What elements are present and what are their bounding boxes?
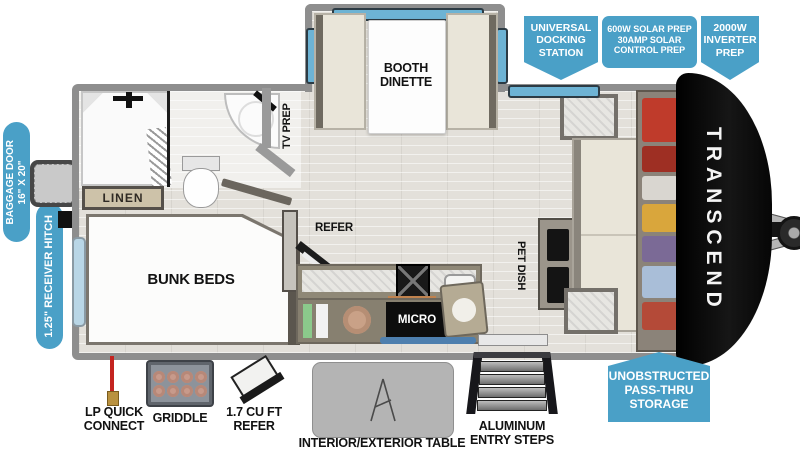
badge-line: PREP xyxy=(701,47,759,59)
baggage-door-label: BAGGAGE DOOR 16" X 20" xyxy=(5,140,29,224)
griddle-pancake xyxy=(167,385,179,397)
step-tread xyxy=(478,387,546,398)
badge-line: UNIVERSAL xyxy=(524,22,598,34)
linen-label: LINEN xyxy=(103,191,144,205)
baggage-door-panel xyxy=(34,164,74,203)
cabinet-front-top xyxy=(560,94,618,140)
linen-cabinet: LINEN xyxy=(82,186,164,210)
griddle-pancake xyxy=(181,371,193,383)
griddle-label: GRIDDLE xyxy=(142,412,218,426)
entry-door-panel xyxy=(478,334,548,346)
griddle-image xyxy=(146,360,214,407)
baggage-door-pill: BAGGAGE DOOR 16" X 20" xyxy=(3,122,30,242)
entry-steps-label: ALUMINUM ENTRY STEPS xyxy=(458,420,566,447)
badge-line: STATION xyxy=(524,47,598,59)
griddle-pancake xyxy=(195,371,207,383)
floorplan-canvas: UNIVERSAL DOCKING STATION 600W SOLAR PRE… xyxy=(0,0,800,453)
griddle-surface xyxy=(151,365,209,402)
stored-gear xyxy=(642,236,678,262)
bathroom-wall xyxy=(262,88,271,148)
stored-gear xyxy=(642,146,678,172)
stove-cooktop xyxy=(396,264,430,298)
badge-line: INVERTER xyxy=(701,34,759,46)
stored-gear xyxy=(642,176,678,200)
cabinet-white-panel xyxy=(316,304,328,338)
griddle-pancake xyxy=(181,385,193,397)
badge-line: 2000W xyxy=(701,22,759,34)
entry-steps xyxy=(468,352,556,414)
toilet-bowl xyxy=(183,168,219,208)
entry-mat xyxy=(380,337,476,344)
tv-prep-label: TV PREP xyxy=(282,98,294,154)
griddle-pancake xyxy=(195,385,207,397)
stored-table-top xyxy=(451,297,477,323)
stored-gear xyxy=(642,204,678,232)
table-label: INTERIOR/EXTERIOR TABLE xyxy=(290,437,474,451)
stored-gear xyxy=(642,98,678,142)
griddle-pancake xyxy=(167,371,179,383)
refer-label: REFER xyxy=(306,222,362,234)
badge-line: PASS-THRU xyxy=(608,383,710,397)
receiver-hitch-label: 1.25" RECEIVER HITCH xyxy=(43,215,56,338)
lp-fitting xyxy=(107,391,119,406)
pass-thru-badge: UNOBSTRUCTED PASS-THRU STORAGE xyxy=(608,352,710,422)
bench-edge xyxy=(489,15,496,128)
microwave: MICRO xyxy=(386,302,448,338)
bunk-window xyxy=(72,237,86,327)
stored-table xyxy=(439,281,488,338)
cabinet-front-bottom xyxy=(564,288,618,334)
cutting-board xyxy=(343,306,371,334)
front-cap: TRANSCEND xyxy=(676,73,772,366)
step-tread xyxy=(479,374,545,385)
griddle-pancake xyxy=(153,371,165,383)
shower-wall xyxy=(167,91,170,187)
pet-dish-label: PET DISH xyxy=(514,226,526,306)
booth-dinette-label: BOOTH DINETTE xyxy=(358,62,454,89)
solar-prep-badge: 600W SOLAR PREP 30AMP SOLAR CONTROL PREP xyxy=(602,16,697,68)
bench-edge xyxy=(316,15,323,128)
cabinet-green-panel xyxy=(303,304,312,338)
stored-gear xyxy=(642,266,678,298)
step-top xyxy=(474,352,550,358)
pet-dish-bowl xyxy=(547,229,569,261)
stored-gear xyxy=(642,302,678,330)
step-tread xyxy=(480,361,544,372)
badge-line: CONTROL PREP xyxy=(602,45,697,56)
bunk-beds-label: BUNK BEDS xyxy=(116,272,266,288)
brand-logo: TRANSCEND xyxy=(702,127,725,313)
griddle-pancake xyxy=(153,385,165,397)
baggage-door-hatch xyxy=(30,160,78,207)
mini-refer-label: 1.7 CU FT REFER xyxy=(212,406,296,433)
badge-line: UNOBSTRUCTED xyxy=(608,369,710,383)
lp-hose xyxy=(110,356,114,392)
badge-line: DOCKING xyxy=(524,34,598,46)
front-wall-window xyxy=(508,85,600,98)
inverter-prep-badge: 2000W INVERTER PREP xyxy=(701,16,759,80)
shower-arm-icon xyxy=(126,92,132,108)
micro-label: MICRO xyxy=(398,314,436,326)
universal-docking-badge: UNIVERSAL DOCKING STATION xyxy=(524,16,598,80)
mini-refer-image xyxy=(224,358,284,406)
badge-line: 600W SOLAR PREP xyxy=(602,24,697,35)
step-tread xyxy=(477,400,547,411)
table-image xyxy=(312,362,454,438)
badge-line: 30AMP SOLAR xyxy=(602,35,697,46)
badge-line: STORAGE xyxy=(608,397,710,411)
compass-logo-icon xyxy=(364,376,402,424)
